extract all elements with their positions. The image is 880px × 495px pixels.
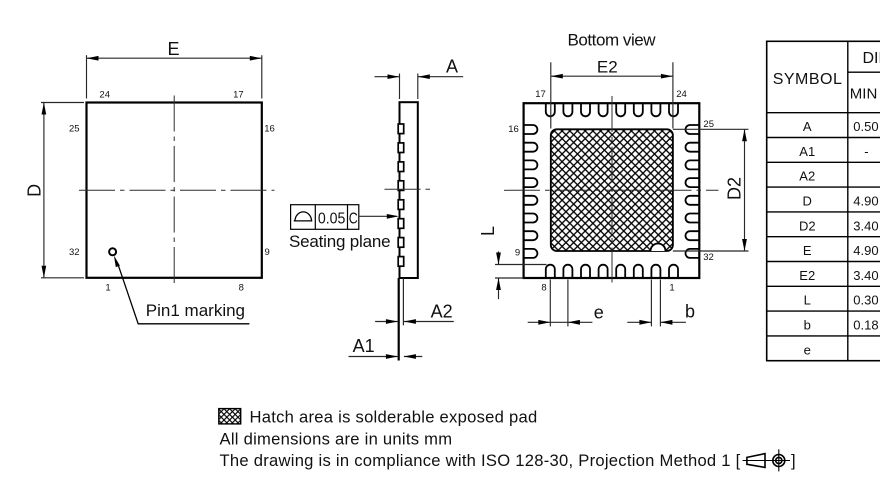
svg-text:D: D <box>25 184 45 197</box>
svg-text:DIMENSION (mm): DIMENSION (mm) <box>863 50 880 67</box>
svg-text:32: 32 <box>703 252 714 263</box>
svg-text:0.50: 0.50 <box>853 119 878 134</box>
svg-text:E: E <box>167 39 179 59</box>
svg-text:9: 9 <box>264 247 269 258</box>
svg-text:3.40: 3.40 <box>853 218 878 233</box>
svg-text:Hatch area is solderable expos: Hatch area is solderable exposed pad <box>250 407 538 426</box>
svg-text:E2: E2 <box>597 58 618 77</box>
svg-text:24: 24 <box>99 90 110 101</box>
svg-text:1: 1 <box>669 282 674 293</box>
svg-text:Pin1 marking: Pin1 marking <box>146 301 245 320</box>
svg-text:SYMBOL: SYMBOL <box>773 71 843 88</box>
svg-text:E: E <box>803 243 812 258</box>
svg-text:1: 1 <box>105 282 110 293</box>
svg-text:9: 9 <box>515 247 520 258</box>
svg-text:]: ] <box>791 451 796 470</box>
svg-text:8: 8 <box>239 282 244 293</box>
svg-text:0.18: 0.18 <box>853 318 878 333</box>
svg-text:E2: E2 <box>799 268 815 283</box>
svg-text:All dimensions are in units mm: All dimensions are in units mm <box>220 429 453 448</box>
svg-text:24: 24 <box>676 89 687 100</box>
svg-text:A1: A1 <box>353 336 375 356</box>
svg-text:25: 25 <box>69 124 80 135</box>
svg-text:The drawing is in compliance w: The drawing is in compliance with ISO 12… <box>220 451 741 470</box>
svg-text:-: - <box>864 144 868 159</box>
svg-text:e: e <box>804 342 811 357</box>
svg-text:32: 32 <box>69 247 80 258</box>
svg-text:0.05: 0.05 <box>318 210 346 227</box>
svg-text:b: b <box>804 318 811 333</box>
svg-text:3.40: 3.40 <box>853 268 878 283</box>
svg-text:17: 17 <box>535 89 546 100</box>
svg-text:D2: D2 <box>725 177 745 200</box>
svg-text:A: A <box>446 57 458 77</box>
svg-text:Seating plane: Seating plane <box>289 232 390 251</box>
svg-text:C: C <box>349 210 358 227</box>
svg-text:4.90: 4.90 <box>853 243 878 258</box>
svg-text:D2: D2 <box>799 218 816 233</box>
svg-text:MIN: MIN <box>850 85 878 102</box>
svg-text:A2: A2 <box>431 302 453 322</box>
svg-text:A1: A1 <box>799 144 815 159</box>
svg-text:A2: A2 <box>799 169 815 184</box>
svg-text:16: 16 <box>264 124 275 135</box>
svg-text:L: L <box>478 226 498 236</box>
svg-text:Bottom view: Bottom view <box>568 31 657 50</box>
svg-text:25: 25 <box>703 119 714 130</box>
svg-text:e: e <box>594 303 604 323</box>
svg-text:A: A <box>803 119 812 134</box>
svg-text:L: L <box>804 293 811 308</box>
svg-text:16: 16 <box>508 124 519 135</box>
svg-text:8: 8 <box>541 282 546 293</box>
svg-text:b: b <box>685 302 695 322</box>
svg-text:D: D <box>803 194 812 209</box>
svg-text:0.30: 0.30 <box>853 293 878 308</box>
svg-text:17: 17 <box>233 90 244 101</box>
svg-text:4.90: 4.90 <box>853 194 878 209</box>
